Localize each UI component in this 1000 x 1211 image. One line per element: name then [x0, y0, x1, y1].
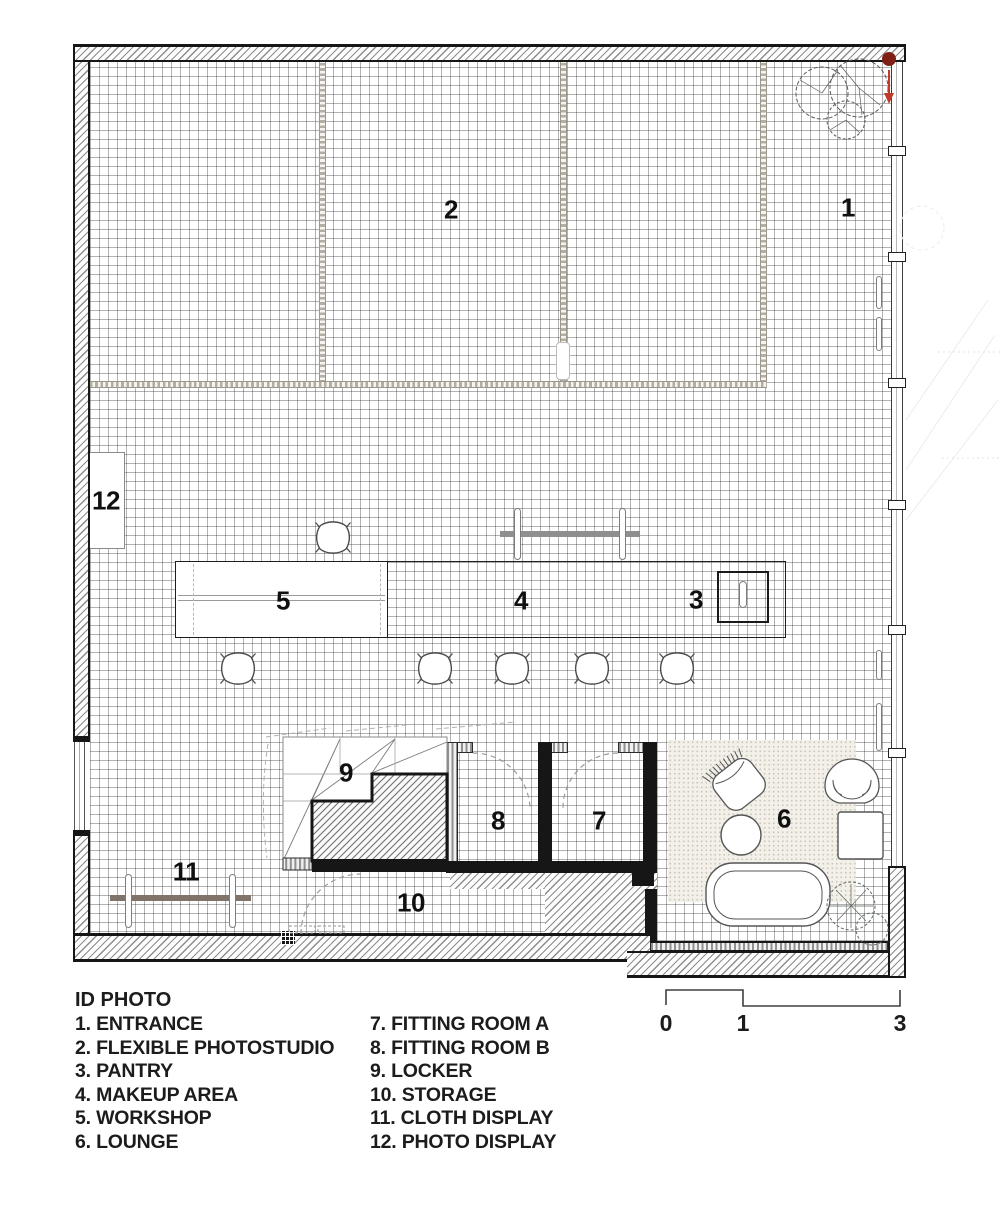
legend-item: 1. ENTRANCE: [75, 1013, 334, 1037]
legend-column-left: 1. ENTRANCE 2. FLEXIBLE PHOTOSTUDIO 3. P…: [75, 1013, 334, 1155]
glazing-mullion-6: [888, 748, 906, 758]
glazing-mullion-2: [888, 252, 906, 262]
workshop-table-dash-right: [380, 564, 381, 635]
room-label-entrance: 1: [841, 193, 855, 224]
legend-item: 11. CLOTH DISPLAY: [370, 1107, 556, 1131]
glazing-mullion-1: [888, 146, 906, 156]
glazing-hook-3: [876, 650, 882, 680]
scale-label-3: 3: [894, 1010, 907, 1037]
legend-item: 5. WORKSHOP: [75, 1107, 334, 1131]
legend-item: 4. MAKEUP AREA: [75, 1084, 334, 1108]
curtain-gap: [556, 342, 570, 380]
wall-top: [73, 44, 906, 62]
wall-bottom-right: [627, 951, 906, 978]
curtain-track-vertical-3: [760, 62, 767, 388]
room-label-workshop: 5: [276, 586, 290, 617]
legend-item: 9. LOCKER: [370, 1060, 556, 1084]
floor-plan-page: 1 2 3 4 5 6 7 8 9 10 11 12 ID PHOTO 1. E…: [0, 0, 1000, 1211]
glazing-hook-4: [876, 703, 882, 751]
fitting-rooms-bottom-wall: [446, 861, 657, 873]
exterior-sketch: [900, 206, 1000, 520]
room-label-fitting-b: 8: [491, 806, 505, 837]
fitting-b-left-wall: [446, 742, 458, 872]
room-label-locker: 9: [339, 758, 353, 789]
glazing-hook-2: [876, 317, 882, 351]
legend-item: 12. PHOTO DISPLAY: [370, 1131, 556, 1155]
room-label-makeup: 4: [514, 586, 528, 617]
room-label-photostudio: 2: [444, 195, 458, 226]
curtain-track-horizontal: [90, 381, 767, 388]
fitting-partition-wall: [538, 742, 552, 872]
room-label-lounge: 6: [777, 804, 791, 835]
pantry-sink: [739, 581, 747, 608]
glazing-mullion-3: [888, 378, 906, 388]
lounge-left-wall: [643, 742, 657, 942]
legend-title: ID PHOTO: [75, 989, 171, 1012]
room-label-pantry: 3: [689, 585, 703, 616]
left-window: [74, 742, 85, 832]
legend-item: 8. FITTING ROOM B: [370, 1037, 556, 1061]
room-label-photo-display: 12: [92, 486, 120, 517]
curtain-track-vertical-1: [319, 62, 326, 388]
wall-left-upper: [73, 62, 90, 738]
wall-left-lower: [73, 836, 90, 935]
storefront-glazing: [891, 62, 903, 866]
makeup-rail-post-left: [514, 508, 521, 560]
scale-label-1: 1: [737, 1010, 750, 1037]
legend-item: 3. PANTRY: [75, 1060, 334, 1084]
curtain-track-vertical-2: [560, 62, 567, 388]
room-label-storage: 10: [397, 888, 425, 919]
room-label-cloth-display: 11: [173, 857, 200, 888]
cloth-rail-post-right: [229, 874, 236, 928]
room-label-fitting-a: 7: [592, 806, 606, 837]
scale-label-0: 0: [660, 1010, 673, 1037]
wall-right-pier: [888, 866, 906, 978]
glazing-mullion-4: [888, 500, 906, 510]
lounge-rug: [668, 740, 856, 902]
cloth-rail-post-left: [125, 874, 132, 928]
legend-item: 6. LOUNGE: [75, 1131, 334, 1155]
workshop-table-dash-left: [193, 564, 194, 635]
glazing-hook-1: [876, 276, 882, 309]
lounge-corner-jog: [632, 868, 654, 886]
legend-item: 10. STORAGE: [370, 1084, 556, 1108]
legend-item: 2. FLEXIBLE PHOTOSTUDIO: [75, 1037, 334, 1061]
legend-item: 7. FITTING ROOM A: [370, 1013, 556, 1037]
makeup-rail-post-right: [619, 508, 626, 560]
glazing-mullion-5: [888, 625, 906, 635]
column: [281, 931, 295, 945]
scale-bar: [660, 985, 910, 1015]
wall-bottom-main: [73, 933, 650, 962]
legend-column-right: 7. FITTING ROOM A 8. FITTING ROOM B 9. L…: [370, 1013, 556, 1155]
